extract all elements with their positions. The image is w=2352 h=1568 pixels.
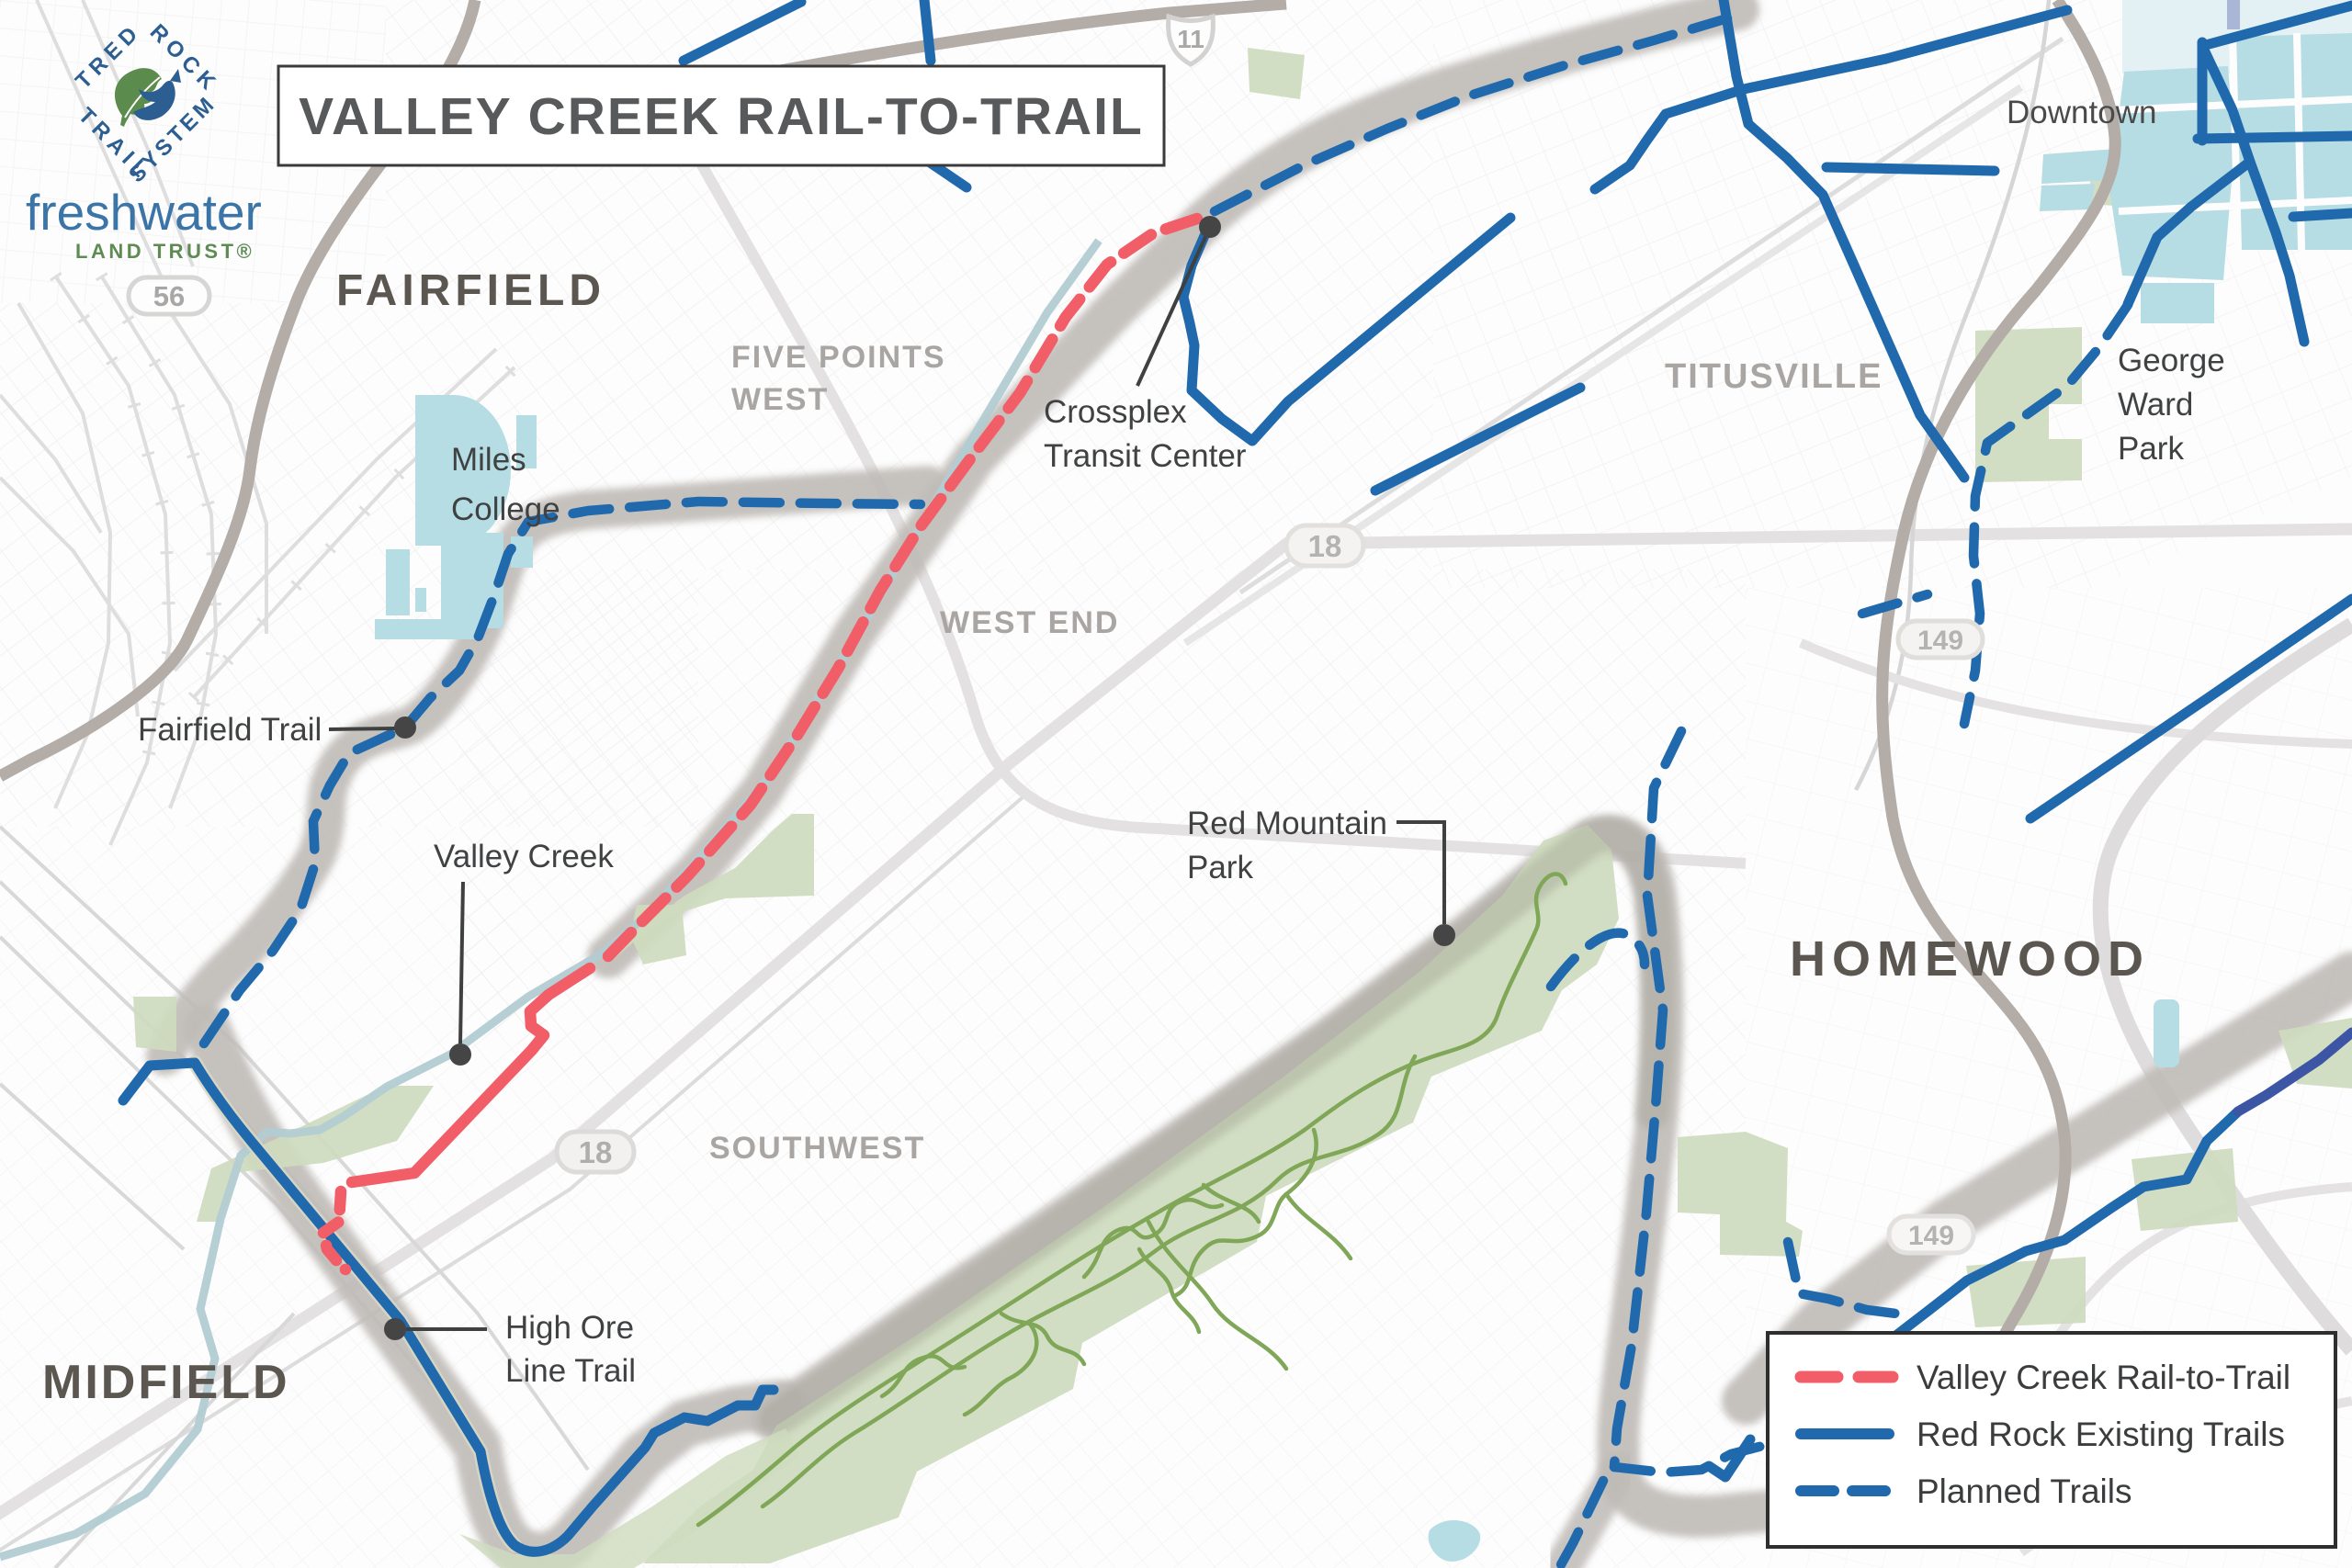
svg-text:Park: Park <box>2118 431 2184 467</box>
svg-text:WEST: WEST <box>731 382 829 417</box>
svg-text:Crossplex: Crossplex <box>1044 394 1187 430</box>
svg-text:Red Mountain: Red Mountain <box>1187 806 1387 841</box>
svg-text:Transit Center: Transit Center <box>1044 438 1247 474</box>
svg-text:18: 18 <box>579 1135 613 1169</box>
svg-text:11: 11 <box>1177 25 1204 53</box>
svg-text:MIDFIELD: MIDFIELD <box>42 1356 290 1409</box>
svg-text:WEST END: WEST END <box>940 605 1119 640</box>
svg-text:High Ore: High Ore <box>505 1310 634 1346</box>
svg-text:Downtown: Downtown <box>2007 95 2156 130</box>
svg-text:FIVE POINTS: FIVE POINTS <box>731 340 946 375</box>
svg-text:Miles: Miles <box>451 442 526 478</box>
svg-text:George: George <box>2118 343 2225 378</box>
svg-text:Valley Creek: Valley Creek <box>434 839 614 874</box>
svg-text:Fairfield Trail: Fairfield Trail <box>138 712 322 748</box>
svg-text:freshwater: freshwater <box>26 184 262 241</box>
svg-text:Ward: Ward <box>2118 387 2193 423</box>
svg-text:18: 18 <box>1308 529 1342 563</box>
svg-text:HOMEWOOD: HOMEWOOD <box>1790 931 2150 987</box>
svg-text:Red Rock Existing Trails: Red Rock Existing Trails <box>1917 1416 2285 1453</box>
svg-text:149: 149 <box>1908 1221 1954 1251</box>
svg-text:Planned Trails: Planned Trails <box>1917 1472 2131 1510</box>
svg-text:TITUSVILLE: TITUSVILLE <box>1665 357 1883 396</box>
svg-text:Valley Creek Rail-to-Trail: Valley Creek Rail-to-Trail <box>1917 1359 2290 1396</box>
svg-text:149: 149 <box>1917 626 1963 656</box>
svg-text:Park: Park <box>1187 850 1253 886</box>
svg-text:56: 56 <box>153 280 185 312</box>
svg-text:LAND TRUST®: LAND TRUST® <box>75 240 254 263</box>
svg-text:VALLEY CREEK RAIL-TO-TRAIL: VALLEY CREEK RAIL-TO-TRAIL <box>299 87 1144 146</box>
svg-text:FAIRFIELD: FAIRFIELD <box>336 266 605 315</box>
svg-text:SOUTHWEST: SOUTHWEST <box>709 1131 925 1166</box>
svg-text:College: College <box>451 491 560 527</box>
svg-text:Line Trail: Line Trail <box>505 1353 636 1389</box>
